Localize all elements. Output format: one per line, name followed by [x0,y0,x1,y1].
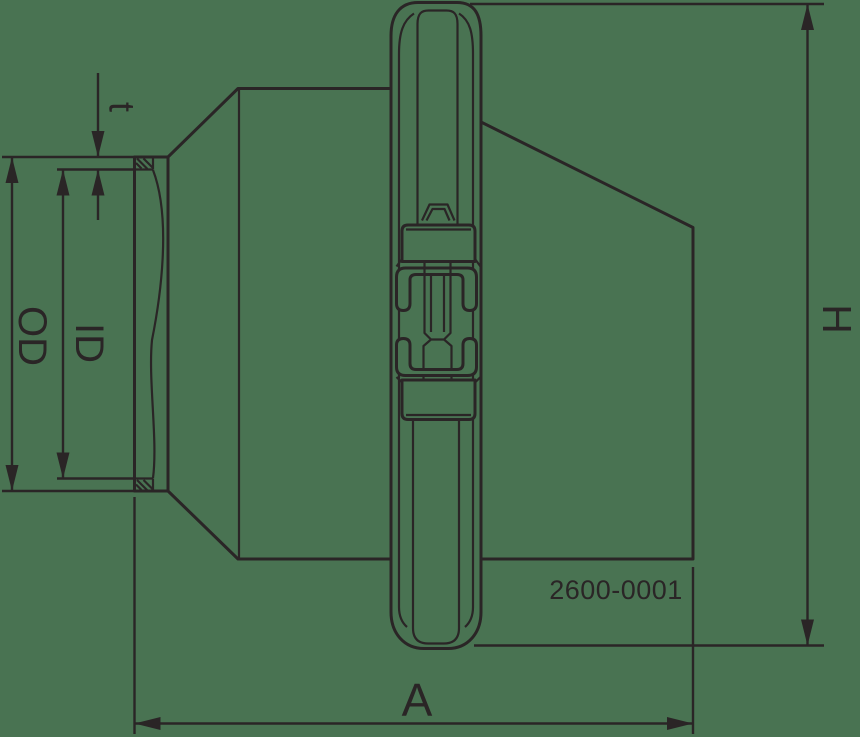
right-body: 2600-0001 [481,122,693,605]
clamp-lower-block [402,380,475,420]
ferrule-outline [135,157,169,491]
h-arrow-top [801,4,814,30]
clamp-band-inner-right [459,14,473,628]
hatch-lines-top [136,159,153,170]
od-label: OD [10,306,54,366]
dished-end-weld-line [151,170,163,478]
clamp-band-inner-u [413,420,459,644]
part-number-label: 2600-0001 [549,575,683,605]
id-label: ID [67,323,111,363]
clamp-band-inner-left [399,14,414,628]
a-label: A [402,674,433,726]
fitting-technical-drawing: 2600-0001 t OD ID [0,0,860,737]
t-arrow-down [92,131,105,157]
dimension-h: H [470,4,860,646]
od-arrow-top [6,157,19,183]
clamp-upper-yoke [397,268,477,311]
h-extension-lines [470,4,824,646]
clamp-bolt-top [418,11,458,225]
hatch-lines-bottom [136,480,153,491]
clamp-assembly [391,3,481,649]
a-arrow-right [667,717,693,730]
clamp-band-outer [391,3,481,649]
h-arrow-bottom [801,620,814,646]
a-arrow-left [135,717,161,730]
right-body-outline [481,122,693,559]
dimension-id: ID [57,170,135,479]
ferrule-cross-section [135,157,169,491]
reducer-body [168,89,391,560]
clamp-lug-inner [427,209,450,221]
cone-bottom-edge [168,491,391,559]
clamp-lower-yoke [397,339,477,376]
id-arrow-top [57,170,70,196]
t-label: t [102,102,143,112]
clamp-bolt-shank [424,262,452,380]
id-arrow-bottom [57,453,70,479]
cone-top-edge [168,89,391,158]
od-arrow-bottom [6,465,19,491]
t-arrow-up [92,170,105,196]
h-label: H [814,304,860,334]
